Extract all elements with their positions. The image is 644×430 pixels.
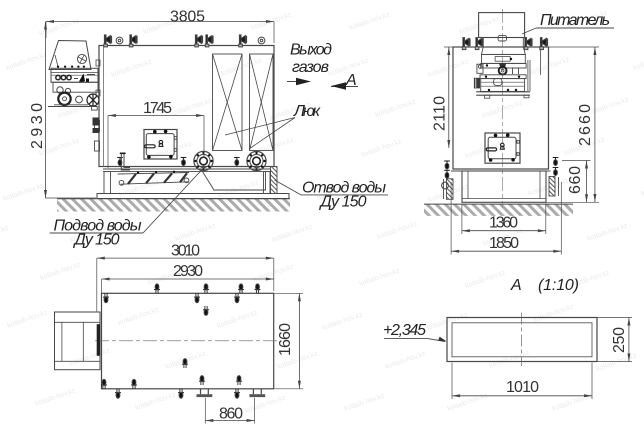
svg-text:Выход: Выход [290,42,332,59]
svg-text:kotlaib-hov.kz: kotlaib-hov.kz [34,387,77,408]
svg-text:kotlaib-hov.kz: kotlaib-hov.kz [271,223,314,244]
svg-text:1850: 1850 [489,235,519,252]
svg-text:газов: газов [292,59,329,76]
svg-text:kotlaib-hov.kz: kotlaib-hov.kz [632,51,644,72]
svg-text:kotlaib-hov.kz: kotlaib-hov.kz [358,267,401,288]
svg-text:kotlaib-hov.kz: kotlaib-hov.kz [458,15,501,36]
svg-text:kotlaib-hov.kz: kotlaib-hov.kz [343,392,386,413]
svg-text:А: А [510,277,522,294]
svg-text:+2,345: +2,345 [383,322,426,339]
svg-text:Ду 150: Ду 150 [73,232,120,249]
svg-text:kotlaib-hov.kz: kotlaib-hov.kz [360,138,403,159]
svg-text:1660: 1660 [277,323,294,356]
svg-text:kotlaib-hov.kz: kotlaib-hov.kz [174,222,217,243]
svg-text:kotlaib-hov.kz: kotlaib-hov.kz [5,51,48,72]
svg-text:2660: 2660 [577,104,594,146]
svg-text:kotlaib-hov.kz: kotlaib-hov.kz [118,178,161,199]
svg-text:kotlaib-hov.kz: kotlaib-hov.kz [348,11,391,32]
svg-text:kotlaib-hov.kz: kotlaib-hov.kz [0,224,10,245]
svg-text:Питатель: Питатель [540,12,610,29]
svg-text:660: 660 [567,166,584,194]
svg-text:250: 250 [611,327,628,353]
svg-text:kotlaib-hov.kz: kotlaib-hov.kz [6,309,49,330]
svg-text:kotlaib-hov.kz: kotlaib-hov.kz [640,177,644,198]
svg-text:Люк: Люк [293,103,321,120]
svg-text:kotlaib-hov.kz: kotlaib-hov.kz [68,347,111,368]
svg-text:1360: 1360 [489,215,518,232]
svg-text:3805: 3805 [170,9,205,26]
svg-text:kotlaib-hov.kz: kotlaib-hov.kz [244,394,287,415]
svg-text:kotlaib-hov.kz: kotlaib-hov.kz [38,17,81,38]
svg-text:1745: 1745 [143,100,172,117]
svg-text:kotlaib-hov.kz: kotlaib-hov.kz [464,269,507,290]
svg-text:860: 860 [219,406,243,423]
svg-text:kotlaib-hov.kz: kotlaib-hov.kz [488,349,531,370]
svg-text:2930: 2930 [173,263,203,280]
svg-text:1010: 1010 [506,379,539,396]
svg-text:kotlaib-hov.kz: kotlaib-hov.kz [586,222,629,243]
svg-text:kotlaib-hov.kz: kotlaib-hov.kz [321,311,364,332]
svg-text:kotlaib-hov.kz: kotlaib-hov.kz [426,311,469,332]
svg-text:2110: 2110 [432,96,449,131]
svg-text:kotlaib-hov.kz: kotlaib-hov.kz [528,56,571,77]
svg-text:kotlaib-hov.kz: kotlaib-hov.kz [110,58,153,79]
svg-text:2930: 2930 [29,103,46,149]
svg-text:kotlaib-hov.kz: kotlaib-hov.kz [532,303,575,324]
svg-text:kotlaib-hov.kz: kotlaib-hov.kz [2,182,45,203]
svg-text:(1:10): (1:10) [538,277,579,294]
svg-text:kotlaib-hov.kz: kotlaib-hov.kz [384,350,427,371]
svg-text:kotlaib-hov.kz: kotlaib-hov.kz [170,97,213,118]
svg-text:kotlaib-hov.kz: kotlaib-hov.kz [117,306,160,327]
svg-text:kotlaib-hov.kz: kotlaib-hov.kz [134,391,177,412]
svg-text:kotlaib-hov.kz: kotlaib-hov.kz [374,98,417,119]
svg-text:kotlaib-hov.kz: kotlaib-hov.kz [376,220,419,241]
svg-text:Ду 150: Ду 150 [319,194,367,211]
svg-text:kotlaib-hov.kz: kotlaib-hov.kz [216,309,259,330]
svg-text:kotlaib-hov.kz: kotlaib-hov.kz [595,352,638,373]
svg-text:3010: 3010 [171,243,200,260]
svg-text:kotlaib-hov.kz: kotlaib-hov.kz [39,261,82,282]
